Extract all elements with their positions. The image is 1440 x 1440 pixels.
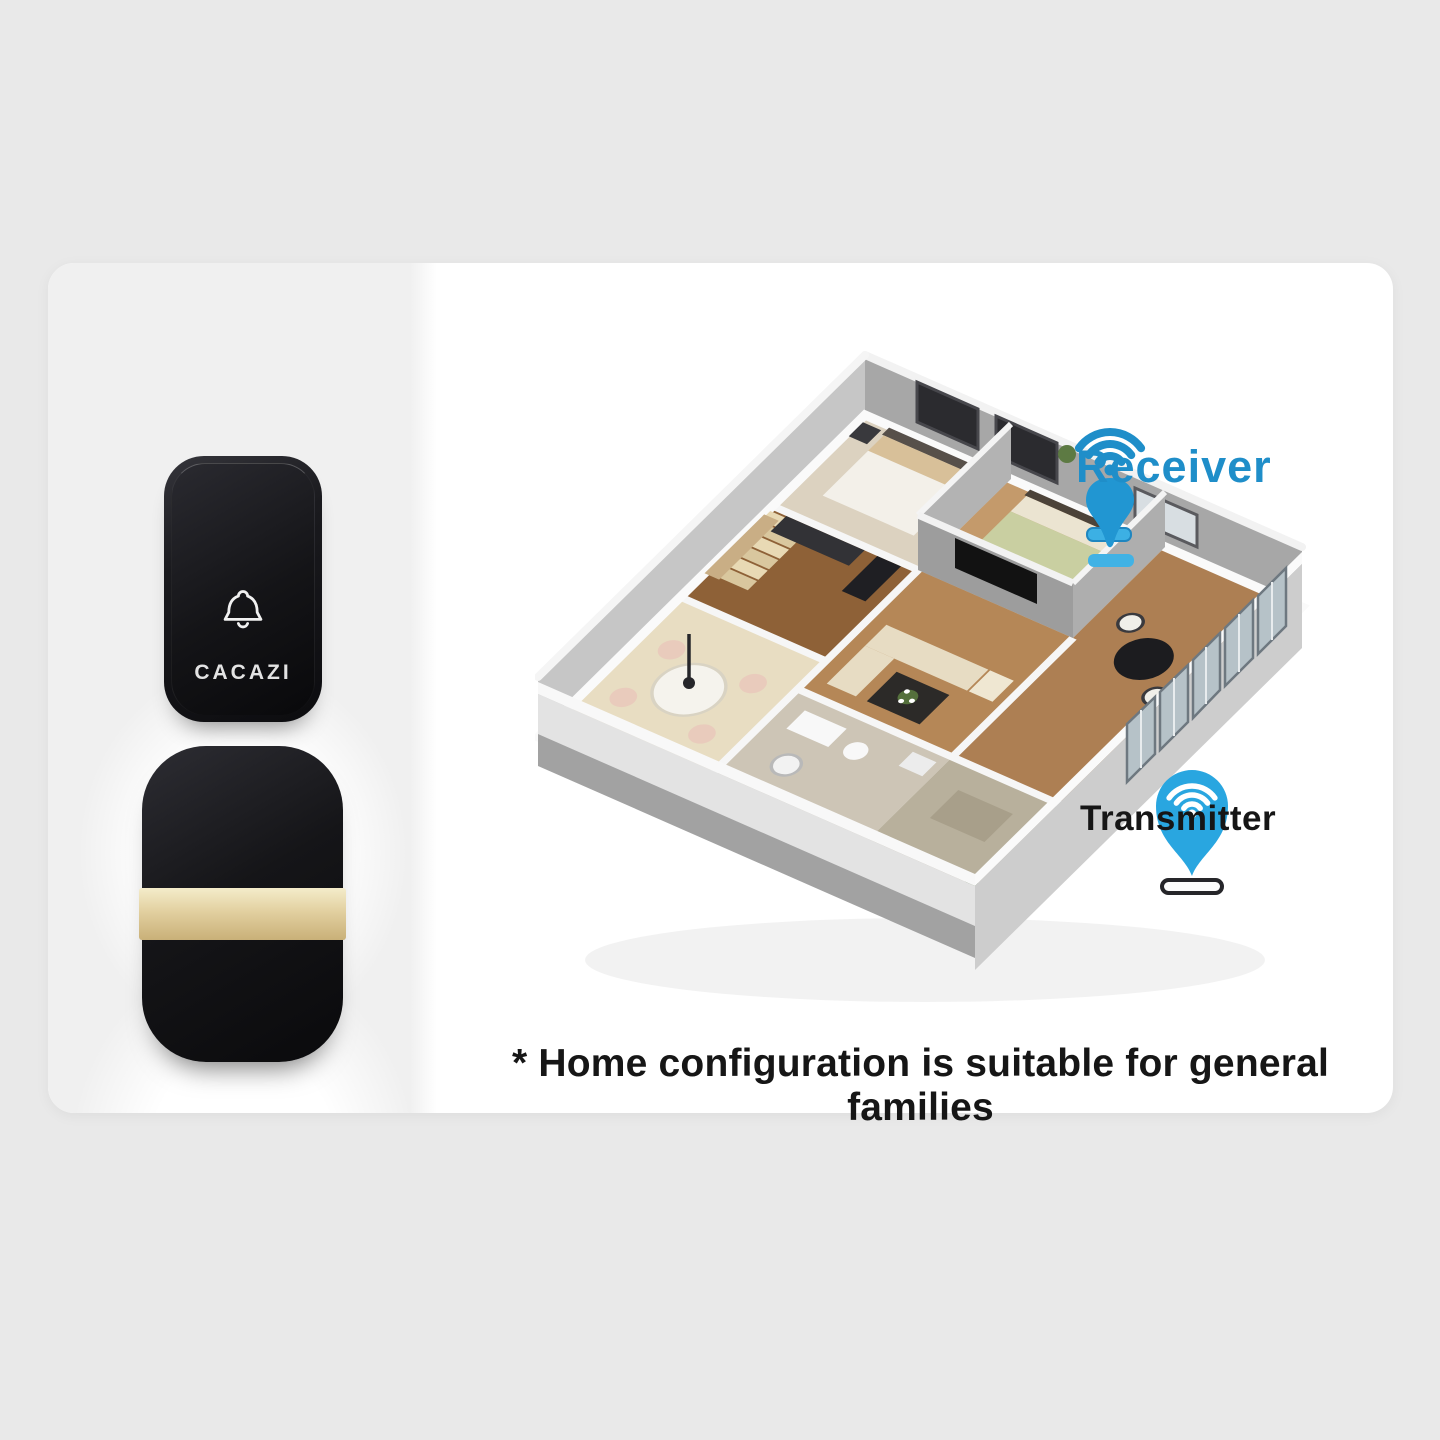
caption-text: * Home configuration is suitable for gen… xyxy=(458,1042,1383,1130)
floorplan-illustration xyxy=(535,330,1315,1020)
bell-icon xyxy=(216,586,270,643)
doorbell-receiver-product xyxy=(142,746,343,1062)
brand-label: CACAZI xyxy=(172,661,314,685)
receiver-label: Receiver xyxy=(1076,441,1272,493)
doorbell-transmitter-product: CACAZI xyxy=(164,456,322,722)
products-panel: CACAZI xyxy=(48,263,437,1113)
receiver-gold-band xyxy=(139,888,346,940)
receiver-wifi-pin-icon xyxy=(1056,414,1176,584)
transmitter-label: Transmitter xyxy=(1080,799,1276,839)
doorbell-face: CACAZI xyxy=(171,463,315,715)
product-marketing-image: { "colors": { "page_bg": "#e9e9e9", "car… xyxy=(0,0,1440,1440)
